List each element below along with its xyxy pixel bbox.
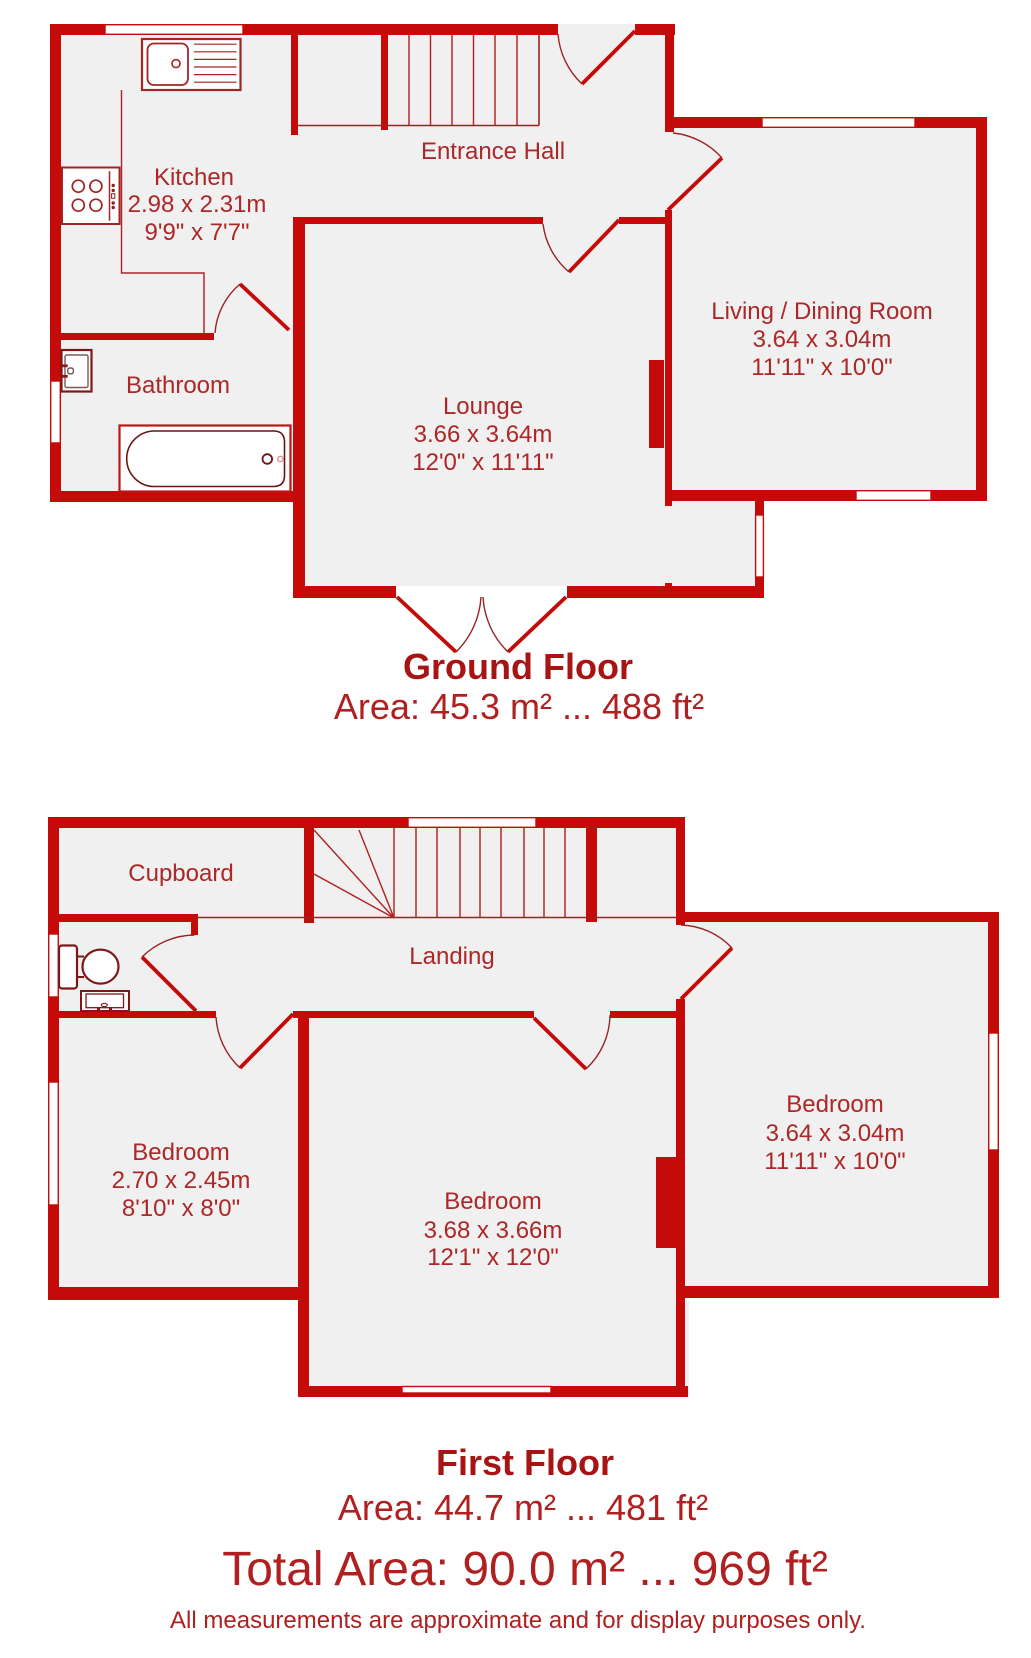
svg-text:Area: 44.7 m² ... 481 ft²: Area: 44.7 m² ... 481 ft² (338, 1487, 708, 1528)
svg-text:3.66 x 3.64m: 3.66 x 3.64m (414, 421, 553, 448)
svg-text:Kitchen: Kitchen (154, 164, 234, 191)
svg-text:8'10" x 8'0": 8'10" x 8'0" (122, 1195, 240, 1222)
svg-text:Cupboard: Cupboard (128, 860, 233, 887)
svg-text:Entrance Hall: Entrance Hall (421, 138, 565, 165)
svg-text:3.64 x 3.04m: 3.64 x 3.04m (753, 326, 892, 353)
svg-text:All measurements are approxima: All measurements are approximate and for… (170, 1607, 866, 1634)
svg-text:3.68 x 3.66m: 3.68 x 3.66m (424, 1217, 563, 1244)
svg-text:12'0" x 11'11": 12'0" x 11'11" (412, 449, 553, 476)
svg-text:Area: 45.3 m² ... 488 ft²: Area: 45.3 m² ... 488 ft² (334, 686, 704, 727)
svg-text:Ground Floor: Ground Floor (403, 646, 633, 687)
svg-text:12'1" x 12'0": 12'1" x 12'0" (427, 1244, 559, 1271)
svg-text:3.64 x 3.04m: 3.64 x 3.04m (766, 1120, 905, 1147)
svg-text:11'11" x 10'0": 11'11" x 10'0" (764, 1148, 905, 1175)
svg-text:Living / Dining Room: Living / Dining Room (711, 298, 932, 325)
svg-text:Lounge: Lounge (443, 393, 523, 420)
svg-text:Bedroom: Bedroom (132, 1139, 229, 1166)
svg-text:9'9" x 7'7": 9'9" x 7'7" (145, 219, 250, 246)
svg-text:Landing: Landing (409, 943, 494, 970)
svg-text:First Floor: First Floor (436, 1442, 614, 1483)
svg-text:2.98 x 2.31m: 2.98 x 2.31m (128, 191, 267, 218)
svg-text:Bedroom: Bedroom (786, 1091, 883, 1118)
svg-text:Total Area: 90.0 m² ... 969 ft: Total Area: 90.0 m² ... 969 ft² (222, 1543, 828, 1596)
svg-text:Bathroom: Bathroom (126, 372, 230, 399)
svg-text:11'11" x 10'0": 11'11" x 10'0" (751, 354, 892, 381)
svg-text:2.70 x 2.45m: 2.70 x 2.45m (112, 1167, 251, 1194)
svg-text:Bedroom: Bedroom (444, 1188, 541, 1215)
